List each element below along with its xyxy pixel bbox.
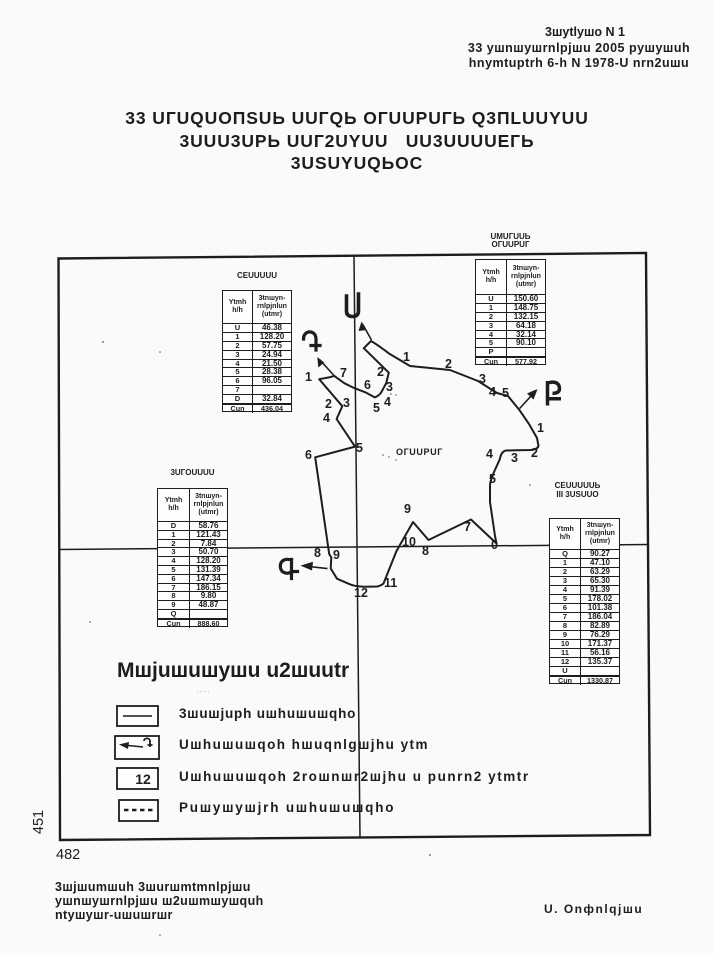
svg-text:12: 12 — [135, 771, 151, 787]
